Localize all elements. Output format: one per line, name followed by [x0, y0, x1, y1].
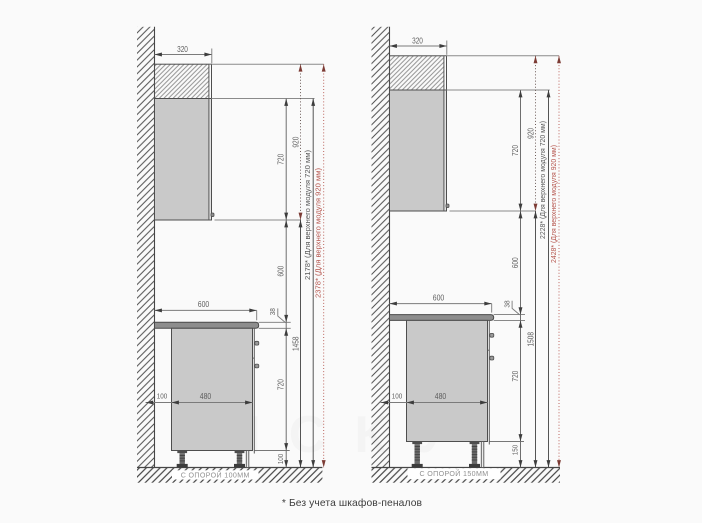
svg-text:320: 320	[412, 37, 423, 46]
svg-text:100: 100	[157, 392, 168, 401]
svg-text:2428* (Для верхнего модуля 920: 2428* (Для верхнего модуля 920 мм)	[551, 145, 558, 263]
svg-text:38: 38	[503, 300, 512, 307]
svg-text:2228* (Для верхнего модуля 720: 2228* (Для верхнего модуля 720 мм)	[540, 121, 547, 239]
svg-text:480: 480	[200, 392, 212, 401]
svg-text:600: 600	[198, 300, 210, 309]
svg-text:920: 920	[291, 136, 300, 148]
svg-text:600: 600	[511, 257, 520, 269]
svg-text:720: 720	[511, 144, 520, 156]
svg-text:600: 600	[433, 293, 445, 302]
svg-text:1508: 1508	[526, 332, 535, 347]
svg-text:38: 38	[268, 308, 277, 315]
svg-text:480: 480	[435, 392, 447, 401]
svg-text:С ОПОРОЙ 150ММ: С ОПОРОЙ 150ММ	[420, 469, 489, 478]
svg-text:720: 720	[511, 370, 520, 382]
svg-text:100: 100	[276, 454, 285, 465]
svg-text:720: 720	[277, 153, 286, 165]
svg-text:320: 320	[177, 45, 188, 54]
svg-text:150: 150	[510, 445, 519, 456]
svg-text:С ОПОРОЙ 100ММ: С ОПОРОЙ 100ММ	[181, 470, 250, 479]
svg-text:2378* (Для верхнего модуля 920: 2378* (Для верхнего модуля 920 мм)	[316, 168, 323, 298]
svg-text:920: 920	[526, 127, 535, 139]
svg-text:2178* (Для верхнего модуля 720: 2178* (Для верхнего модуля 720 мм)	[305, 150, 312, 280]
svg-text:* Без учета шкафов-пеналов: * Без учета шкафов-пеналов	[282, 497, 423, 509]
svg-text:720: 720	[277, 379, 286, 391]
svg-text:1458: 1458	[291, 337, 300, 352]
svg-text:100: 100	[392, 392, 403, 401]
svg-text:600: 600	[277, 265, 286, 277]
